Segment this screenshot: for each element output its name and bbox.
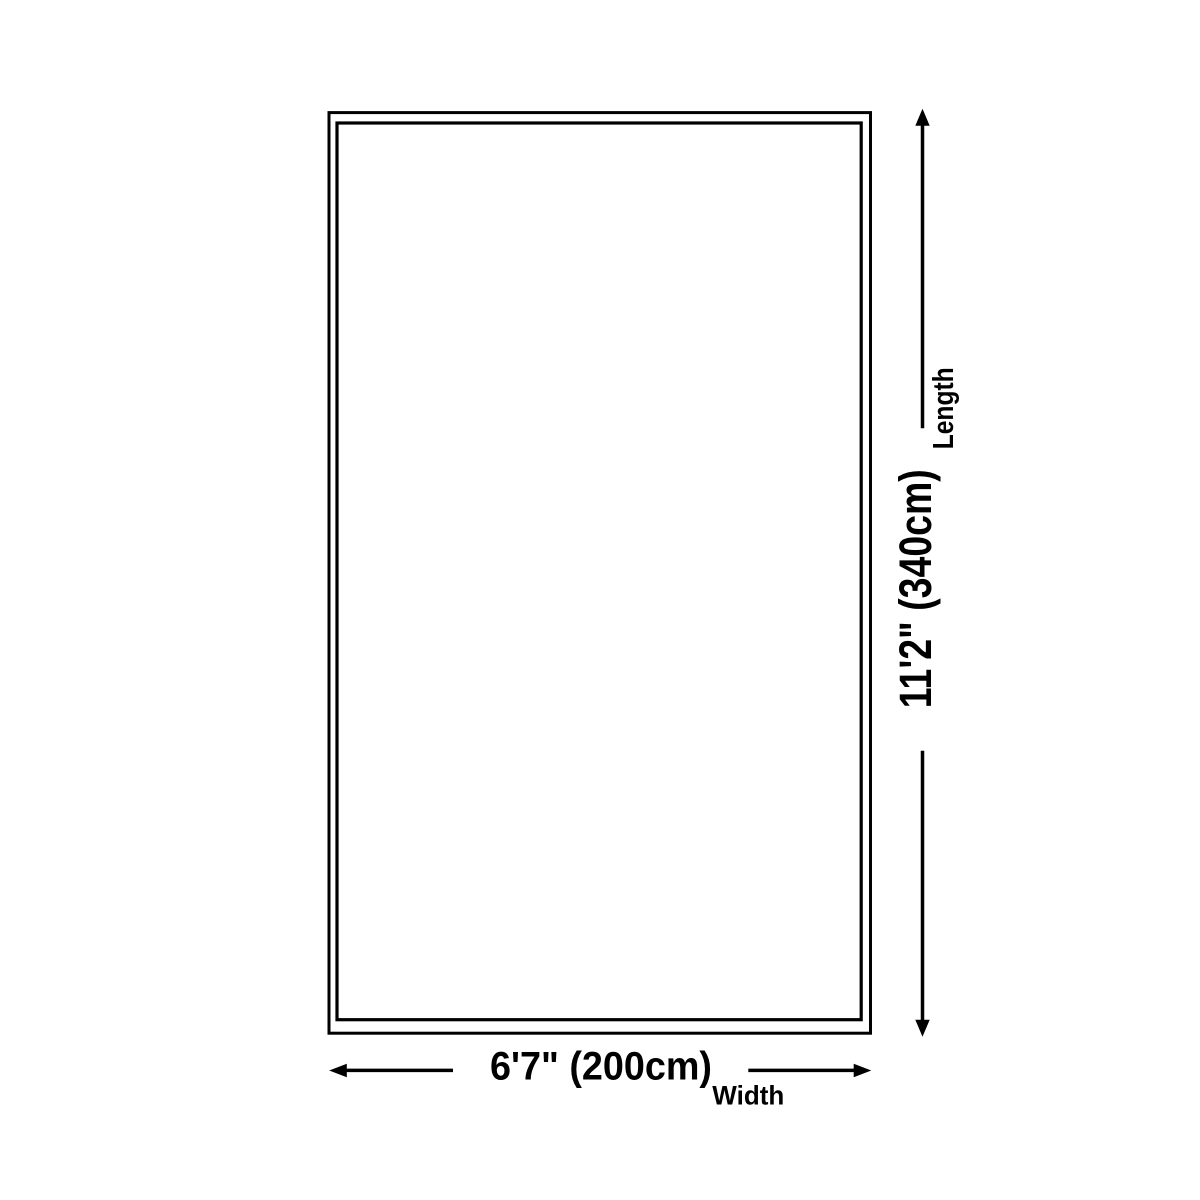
- svg-text:Length: Length: [928, 367, 960, 449]
- svg-text:11'2" (340cm): 11'2" (340cm): [890, 469, 941, 708]
- svg-text:Width: Width: [712, 1081, 784, 1111]
- svg-text:6'7" (200cm): 6'7" (200cm): [490, 1045, 712, 1089]
